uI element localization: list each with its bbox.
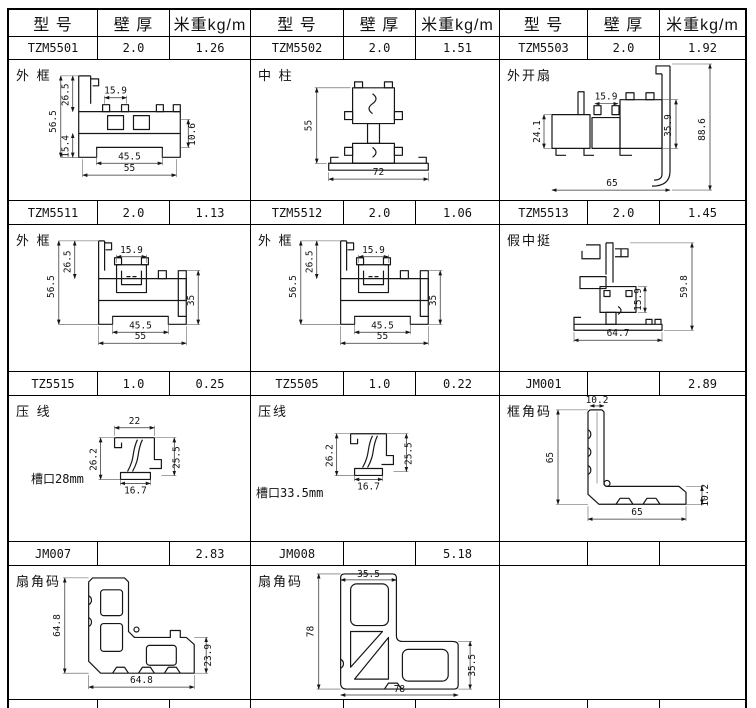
dim-label: 10.2 (586, 396, 609, 406)
dim-label: 16.7 (124, 485, 147, 496)
spec-weight: 1.13 (170, 201, 251, 225)
spec-model: TZM5501 (9, 37, 98, 60)
profile-outline (574, 243, 662, 330)
dim-label: 56.5 (46, 275, 57, 298)
profile-outline (552, 66, 670, 186)
spec-model: TZ5505 (251, 372, 344, 396)
spec-weight: 2.89 (660, 372, 745, 396)
dim-label: 25.5 (171, 446, 182, 469)
header-thickness-2: 壁 厚 (344, 10, 416, 37)
partial-row-cell (500, 700, 588, 708)
dim-label: 64.8 (130, 675, 153, 686)
dim-label: 65 (606, 178, 617, 189)
spec-thickness: 2.0 (98, 37, 170, 60)
spec-model: JM007 (9, 542, 98, 566)
header-weight-2: 米重kg/m (416, 10, 500, 37)
spec-thickness: 2.0 (344, 37, 416, 60)
dim-label: 45.5 (129, 320, 152, 331)
dim-label: 64.8 (52, 614, 63, 637)
partial-row-cell (170, 700, 251, 708)
spec-thickness (588, 372, 660, 396)
profile-outline (115, 438, 162, 480)
dimension-lines: 24.1 15.9 35.9 88.6 65 (532, 64, 712, 190)
dim-label: 55 (377, 331, 388, 342)
spec-weight: 1.51 (416, 37, 500, 60)
spec-weight: 0.25 (170, 372, 251, 396)
dimension-lines: 59.8 15.9 64.7 (574, 243, 694, 342)
drawing-cell-fake-mullion-tzm5513: 假中挺 59.8 15.9 6 (500, 225, 745, 372)
spec-weight: 1.45 (660, 201, 745, 225)
dim-label: 35 (186, 295, 197, 306)
profile-drawing-outward-sash: 24.1 15.9 35.9 88.6 65 (500, 60, 745, 200)
spec-thickness: 2.0 (98, 201, 170, 225)
dim-label: 56.5 (288, 275, 299, 298)
header-model-2: 型 号 (251, 10, 344, 37)
profile-outline (329, 82, 429, 170)
profile-drawing-mullion: 55 72 (251, 60, 499, 200)
profile-outline (588, 410, 686, 504)
dim-label: 22 (129, 416, 140, 427)
drawing-cell-outward-sash-tzm5503: 外开扇 24.1 15.9 35.9 (500, 60, 745, 201)
spec-thickness: 2.0 (588, 201, 660, 225)
profile-spec-table: 型 号 壁 厚 米重kg/m 型 号 壁 厚 米重kg/m 型 号 壁 厚 米重… (7, 8, 747, 708)
profile-outline (79, 76, 181, 157)
dim-label: 35.9 (663, 114, 674, 137)
dim-label: 15.9 (120, 245, 143, 256)
dim-label: 26.2 (89, 448, 100, 471)
drawing-cell-sash-corner-jm007: 扇角码 64.8 23.9 64.8 (9, 566, 251, 700)
dim-label: 15.4 (61, 135, 72, 158)
spec-weight (660, 542, 745, 566)
spec-model: JM008 (251, 542, 344, 566)
header-model-3: 型 号 (500, 10, 588, 37)
drawing-cell-glazing-bead-tz5515: 压 线 槽口28mm 22 26.2 25.5 (9, 396, 251, 542)
dim-label: 26.5 (61, 83, 72, 106)
header-thickness-1: 壁 厚 (98, 10, 170, 37)
spec-thickness: 1.0 (98, 372, 170, 396)
header-weight-3: 米重kg/m (660, 10, 745, 37)
dim-label: 64.7 (607, 328, 630, 339)
profile-drawing-glazing-bead: 26.2 25.5 16.7 (251, 396, 499, 541)
profile-outline (89, 578, 195, 673)
spec-thickness: 2.0 (588, 37, 660, 60)
profile-drawing-outer-frame: 56.5 26.5 15.9 35 45.5 55 (9, 225, 250, 371)
spec-model: JM001 (500, 372, 588, 396)
header-model-1: 型 号 (9, 10, 98, 37)
drawing-cell-frame-corner-jm001: 框角码 10.2 65 10.2 65 (500, 396, 745, 542)
dim-label: 78 (394, 684, 406, 695)
drawing-cell-outer-frame-tzm5512: 外 框 56.5 26.5 15.9 (251, 225, 500, 372)
spec-weight: 2.83 (170, 542, 251, 566)
dim-label: 15.9 (595, 92, 618, 103)
spec-model: TZM5503 (500, 37, 588, 60)
spec-model: TZM5502 (251, 37, 344, 60)
spec-model: TZM5513 (500, 201, 588, 225)
profile-drawing-sash-corner: 64.8 23.9 64.8 (9, 566, 250, 699)
profile-drawing-sash-corner: 35.5 78 35.5 78 (251, 566, 499, 699)
partial-row-cell (98, 700, 170, 708)
dim-label: 59.8 (679, 275, 690, 298)
dim-label: 55 (304, 120, 315, 131)
dim-label: 25.5 (403, 442, 414, 465)
dim-label: 45.5 (118, 151, 141, 162)
spec-thickness (588, 542, 660, 566)
dim-label: 16.7 (357, 481, 380, 492)
dim-label: 23.9 (203, 644, 214, 667)
dim-label: 35 (428, 295, 439, 306)
profile-outline (351, 434, 394, 476)
dim-label: 24.1 (532, 120, 543, 143)
dim-label: 72 (373, 167, 384, 178)
spec-thickness (344, 542, 416, 566)
dim-label: 15.9 (362, 245, 385, 256)
dim-label: 35.5 (467, 654, 478, 677)
profile-drawing-frame-corner: 10.2 65 10.2 65 (500, 396, 745, 541)
drawing-cell-glazing-bead-tz5505: 压线 槽口33.5mm 26.2 25.5 16.7 (251, 396, 500, 542)
dim-label: 55 (124, 163, 135, 174)
partial-row-cell (416, 700, 500, 708)
dim-label: 65 (545, 452, 556, 463)
partial-row-cell (344, 700, 416, 708)
header-thickness-3: 壁 厚 (588, 10, 660, 37)
partial-row-cell (251, 700, 344, 708)
spec-weight: 5.18 (416, 542, 500, 566)
profile-drawing-outer-frame: 56.5 26.5 15.9 35 45.5 55 (251, 225, 499, 371)
profile-outline (341, 574, 459, 689)
spec-model: TZ5515 (9, 372, 98, 396)
drawing-cell-outer-frame-tzm5501: 外 框 56.5 26.5 15.4 15.9 (9, 60, 251, 201)
profile-drawing-glazing-bead: 22 26.2 25.5 16.7 (9, 396, 250, 541)
spec-model (500, 542, 588, 566)
dim-label: 45.5 (371, 320, 394, 331)
dim-label: 15.9 (104, 86, 127, 97)
partial-row-cell (588, 700, 660, 708)
spec-thickness (98, 542, 170, 566)
partial-row-cell (9, 700, 98, 708)
spec-thickness: 1.0 (344, 372, 416, 396)
dim-label: 65 (631, 507, 642, 518)
dim-label: 15.9 (633, 288, 644, 311)
dim-label: 26.2 (325, 444, 336, 467)
spec-model: TZM5512 (251, 201, 344, 225)
profile-drawing-fake-mullion: 59.8 15.9 64.7 (500, 225, 745, 371)
dimension-lines: 55 72 (304, 88, 429, 181)
spec-model: TZM5511 (9, 201, 98, 225)
dim-label: 10.2 (700, 484, 711, 507)
partial-row-cell (660, 700, 745, 708)
dim-label: 35.5 (357, 569, 380, 580)
drawing-cell-empty (500, 566, 745, 700)
spec-thickness: 2.0 (344, 201, 416, 225)
drawing-cell-mullion-tzm5502: 中 柱 55 72 (251, 60, 500, 201)
profile-drawing-outer-frame: 56.5 26.5 15.4 15.9 10.6 45.5 55 (9, 60, 250, 200)
spec-weight: 1.26 (170, 37, 251, 60)
drawing-cell-sash-corner-jm008: 扇角码 35.5 78 35.5 78 (251, 566, 500, 700)
spec-weight: 0.22 (416, 372, 500, 396)
dim-label: 56.5 (48, 110, 59, 133)
spec-weight: 1.06 (416, 201, 500, 225)
dim-label: 78 (306, 626, 317, 638)
dim-label: 55 (135, 331, 146, 342)
dim-label: 26.5 (63, 250, 74, 273)
header-weight-1: 米重kg/m (170, 10, 251, 37)
dim-label: 26.5 (305, 250, 316, 273)
drawing-cell-outer-frame-tzm5511: 外 框 56.5 26.5 15.9 (9, 225, 251, 372)
dimension-lines: 22 26.2 25.5 16.7 (89, 416, 183, 497)
spec-weight: 1.92 (660, 37, 745, 60)
dim-label: 88.6 (697, 118, 708, 141)
dim-label: 10.6 (187, 123, 198, 146)
